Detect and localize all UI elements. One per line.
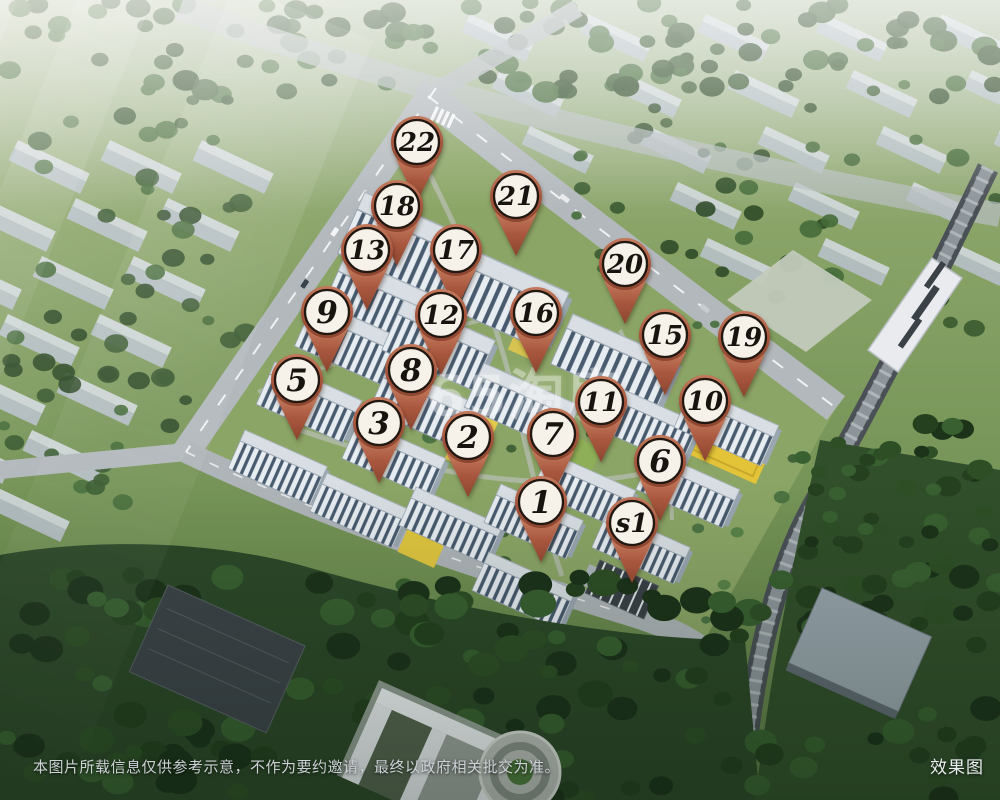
pin-number: 13 xyxy=(349,236,385,266)
pin-number: s1 xyxy=(615,509,649,539)
pin-number: 17 xyxy=(438,236,474,266)
building-pin-21: 21 xyxy=(487,168,545,258)
rendering-image: 365淘房 1 2 3 5 6 xyxy=(0,0,1000,800)
render-type-label: 效果图 xyxy=(930,753,984,778)
pin-number: 12 xyxy=(423,301,459,331)
building-pins-layer: 1 2 3 5 6 7 xyxy=(0,0,1000,800)
pin-number: 16 xyxy=(518,299,554,329)
pin-number: 7 xyxy=(542,417,564,453)
building-pin-2: 2 xyxy=(439,409,497,499)
building-pin-3: 3 xyxy=(350,395,408,485)
pin-number: 19 xyxy=(726,323,762,353)
pin-number: 15 xyxy=(647,321,683,351)
map-pin-icon: s1 xyxy=(603,495,661,585)
pin-number: 6 xyxy=(649,444,671,480)
pin-number: 22 xyxy=(398,128,435,158)
map-pin-icon: 1 xyxy=(512,474,570,564)
map-pin-icon: 16 xyxy=(507,285,565,375)
map-pin-icon: 21 xyxy=(487,168,545,258)
building-pin-1: 1 xyxy=(512,474,570,564)
pin-number: 18 xyxy=(379,192,415,222)
map-pin-icon: 2 xyxy=(439,409,497,499)
pin-number: 3 xyxy=(368,406,390,442)
pin-number: 5 xyxy=(286,363,308,399)
pin-number: 8 xyxy=(399,353,422,389)
map-pin-icon: 5 xyxy=(268,352,326,442)
building-pin-16: 16 xyxy=(507,285,565,375)
pin-number: 2 xyxy=(456,420,479,456)
pin-number: 9 xyxy=(316,295,338,331)
pin-number: 20 xyxy=(606,250,643,280)
building-pin-s1: s1 xyxy=(603,495,661,585)
pin-number: 21 xyxy=(497,182,534,212)
building-pin-5: 5 xyxy=(268,352,326,442)
pin-number: 11 xyxy=(583,388,619,418)
map-pin-icon: 3 xyxy=(350,395,408,485)
disclaimer-text: 本图片所载信息仅供参考示意，不作为要约邀请，最终以政府相关批交为准。 xyxy=(33,756,560,777)
pin-number: 1 xyxy=(530,485,552,521)
pin-number: 10 xyxy=(687,387,723,417)
